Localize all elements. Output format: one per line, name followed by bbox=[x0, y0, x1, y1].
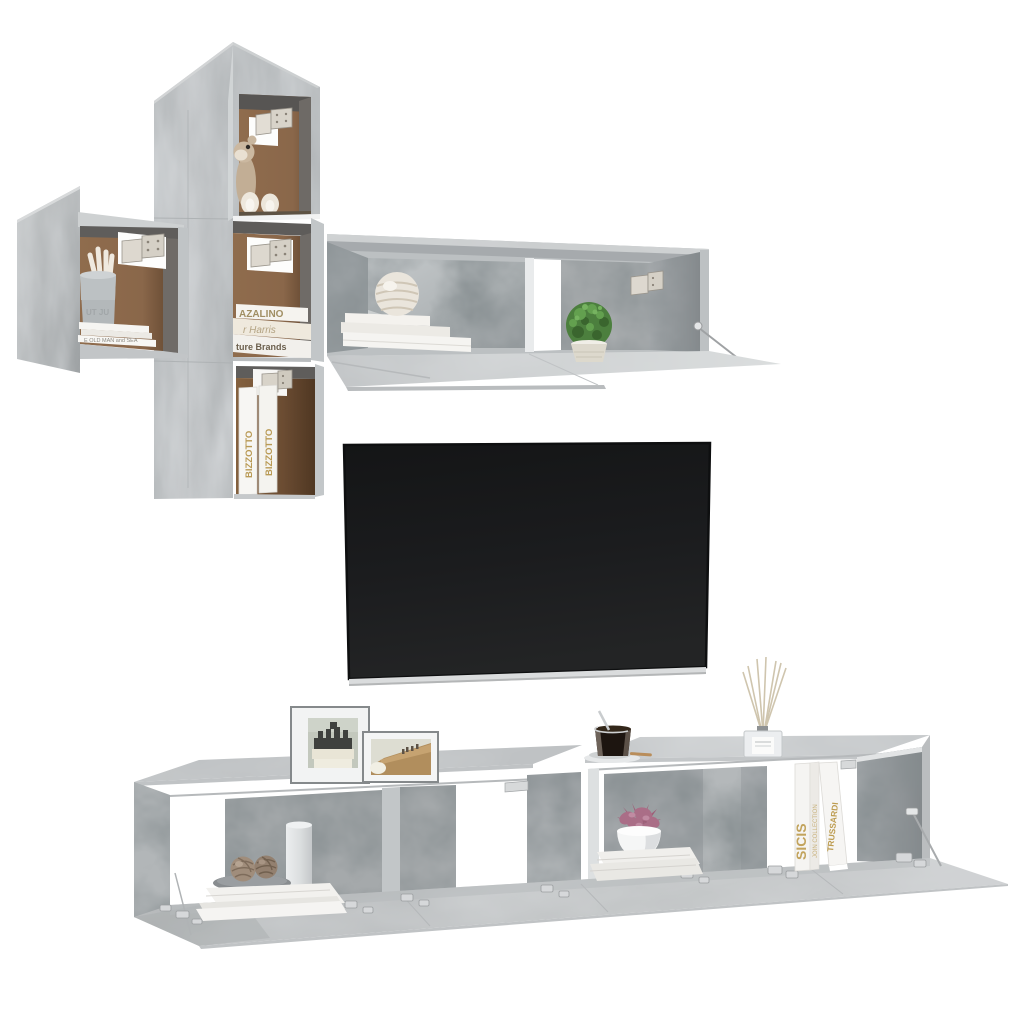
svg-text:E OLD MAN and SEA: E OLD MAN and SEA bbox=[84, 338, 138, 344]
svg-text:SICIS: SICIS bbox=[793, 823, 809, 860]
svg-text:JOIN COLLECTION: JOIN COLLECTION bbox=[813, 804, 819, 858]
svg-text:BIZZOTTO: BIZZOTTO bbox=[244, 431, 255, 478]
svg-text:r Harris: r Harris bbox=[243, 325, 276, 336]
svg-text:ture Brands: ture Brands bbox=[236, 342, 287, 352]
svg-text:BIZZOTTO: BIZZOTTO bbox=[264, 429, 275, 476]
svg-text:UT JU: UT JU bbox=[86, 308, 109, 317]
svg-text:AZALINO: AZALINO bbox=[239, 309, 284, 320]
